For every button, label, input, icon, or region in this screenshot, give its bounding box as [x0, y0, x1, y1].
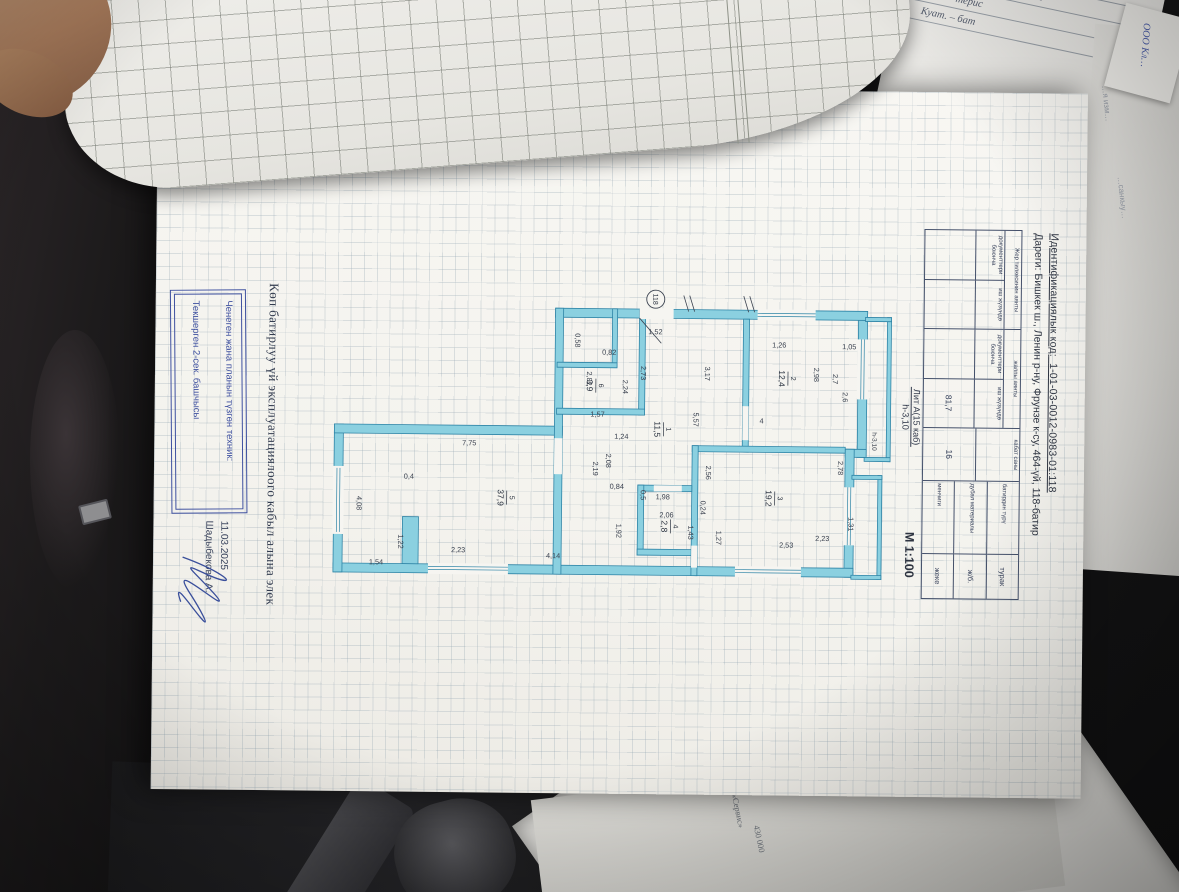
room-number: 2 — [789, 377, 796, 381]
dimension-label: 1,24 — [614, 432, 628, 441]
dimension-label: 2,98 — [812, 368, 821, 382]
dimension-label: 2,23 — [815, 534, 829, 543]
dimension-label: 0,5 — [639, 490, 648, 500]
dimension-label: 4,08 — [355, 496, 364, 510]
identification-code-line: Идентификациялык код: 1-01-03-0012-0983-… — [1046, 233, 1061, 492]
dimension-label: 1,54 — [369, 557, 383, 566]
dimension-label: 1,22 — [396, 534, 405, 548]
dimension-label: 1,57 — [590, 410, 604, 419]
technician-stamp: Ченеген жана планын түзгөн техник: Текше… — [170, 289, 248, 514]
properties-column: батирдин түрү турак дубал материалы ж/б.… — [922, 481, 1019, 599]
photo-scene: Сказание Өндүрүштүк Проектолоо Мал. – те… — [0, 0, 1179, 892]
dimension-label: 2,53 — [779, 541, 793, 550]
dimension-label: 1,98 — [656, 492, 670, 501]
total-area-group: жалпы аянты документтери боюнча иш жүзүн… — [923, 329, 1020, 429]
dimension-label: 0,58 — [573, 333, 582, 347]
grid-margin-lines — [721, 0, 750, 144]
dimension-label: 2,23 — [451, 545, 465, 554]
room-area: 11,5 — [652, 421, 662, 437]
room-area: 19,2 — [764, 490, 774, 507]
dimension-label: 2,06 — [659, 510, 673, 519]
dimension-label: 0,24 — [699, 501, 708, 515]
dimension-label: 4,14 — [546, 551, 560, 560]
tech-passport-page: Идентификациялык код: 1-01-03-0012-0983-… — [151, 84, 1088, 799]
floors-column: кабат саны 16 — [923, 428, 1020, 482]
room-number: 3 — [776, 497, 783, 501]
land-area-group: Жер тилкесинин аянты документтери боюнча… — [924, 230, 1021, 330]
not-accepted-note: Көп батирлуу үй эксплуатациялоого кабыл … — [262, 283, 282, 623]
floor-plan: 118 h-3,10 1,520,580,822,822,242,731,571… — [318, 286, 896, 602]
room-area: 3,9 — [585, 380, 595, 392]
balcony-height-note: h-3,10 — [870, 432, 877, 451]
dimension-label: 1,31 — [846, 517, 855, 531]
room-number: 1 — [664, 427, 671, 431]
side-paper-fragment: …санкыу… — [1116, 176, 1129, 219]
dimension-label: 7,75 — [462, 438, 476, 447]
apartment-number-badge: 118 — [647, 290, 665, 308]
dimension-label: 2,56 — [704, 466, 713, 480]
dimension-label: 3,17 — [703, 367, 712, 381]
side-paper-fragment: …я изм… — [1100, 85, 1113, 122]
slip-handwriting: ООО Кл… — [1138, 23, 1152, 68]
room-area: 37,9 — [496, 489, 506, 506]
dimension-label: 1,52 — [648, 327, 662, 336]
dimension-label: 2,78 — [836, 461, 845, 475]
dimension-label: 1,05 — [842, 342, 856, 351]
dimension-label: 0,4 — [404, 472, 414, 481]
building-info-table: Жер тилкесинин аянты документтери боюнча… — [921, 229, 1023, 600]
dimension-label: 2,6 — [841, 392, 850, 402]
scale-label: М 1:100 — [902, 532, 916, 578]
under-page-fragment: «Сервис» — [730, 793, 747, 829]
dimension-label: 4 — [759, 416, 763, 425]
dimension-label: 1,92 — [614, 524, 623, 538]
dimension-label: 2,24 — [621, 380, 630, 394]
floors-value: 16 — [923, 428, 976, 481]
dimension-label: 1,27 — [714, 531, 723, 545]
room-number: 6 — [597, 384, 604, 388]
dimension-label: 1,43 — [686, 525, 695, 539]
dimension-label: 2,08 — [604, 454, 613, 468]
room-area: 12,4 — [777, 370, 787, 387]
dimension-label: 2,73 — [639, 366, 648, 380]
address-line: Дареги: Бишкек ш., Ленин р-ну, Фрунзе к-… — [1029, 233, 1044, 536]
dimension-label: 0,82 — [602, 348, 616, 357]
dimension-label: 5,57 — [691, 413, 700, 427]
signature — [166, 539, 247, 650]
litera-label: Лит А(15 каб) h-3,10 — [900, 387, 922, 448]
dimension-label: 0,84 — [610, 482, 624, 491]
dimension-label: 2,19 — [591, 461, 600, 475]
room-number: 5 — [508, 496, 515, 500]
seat-fold — [30, 330, 120, 590]
apartment-number: 118 — [651, 294, 658, 305]
dimension-label: 2,7 — [831, 374, 840, 384]
room-area: 2,8 — [659, 520, 669, 532]
total-area-value: 81,7 — [923, 379, 974, 428]
under-page-fragment: 430 000 — [752, 824, 768, 853]
dimension-label: 1,26 — [772, 340, 786, 349]
room-number: 4 — [671, 524, 678, 528]
